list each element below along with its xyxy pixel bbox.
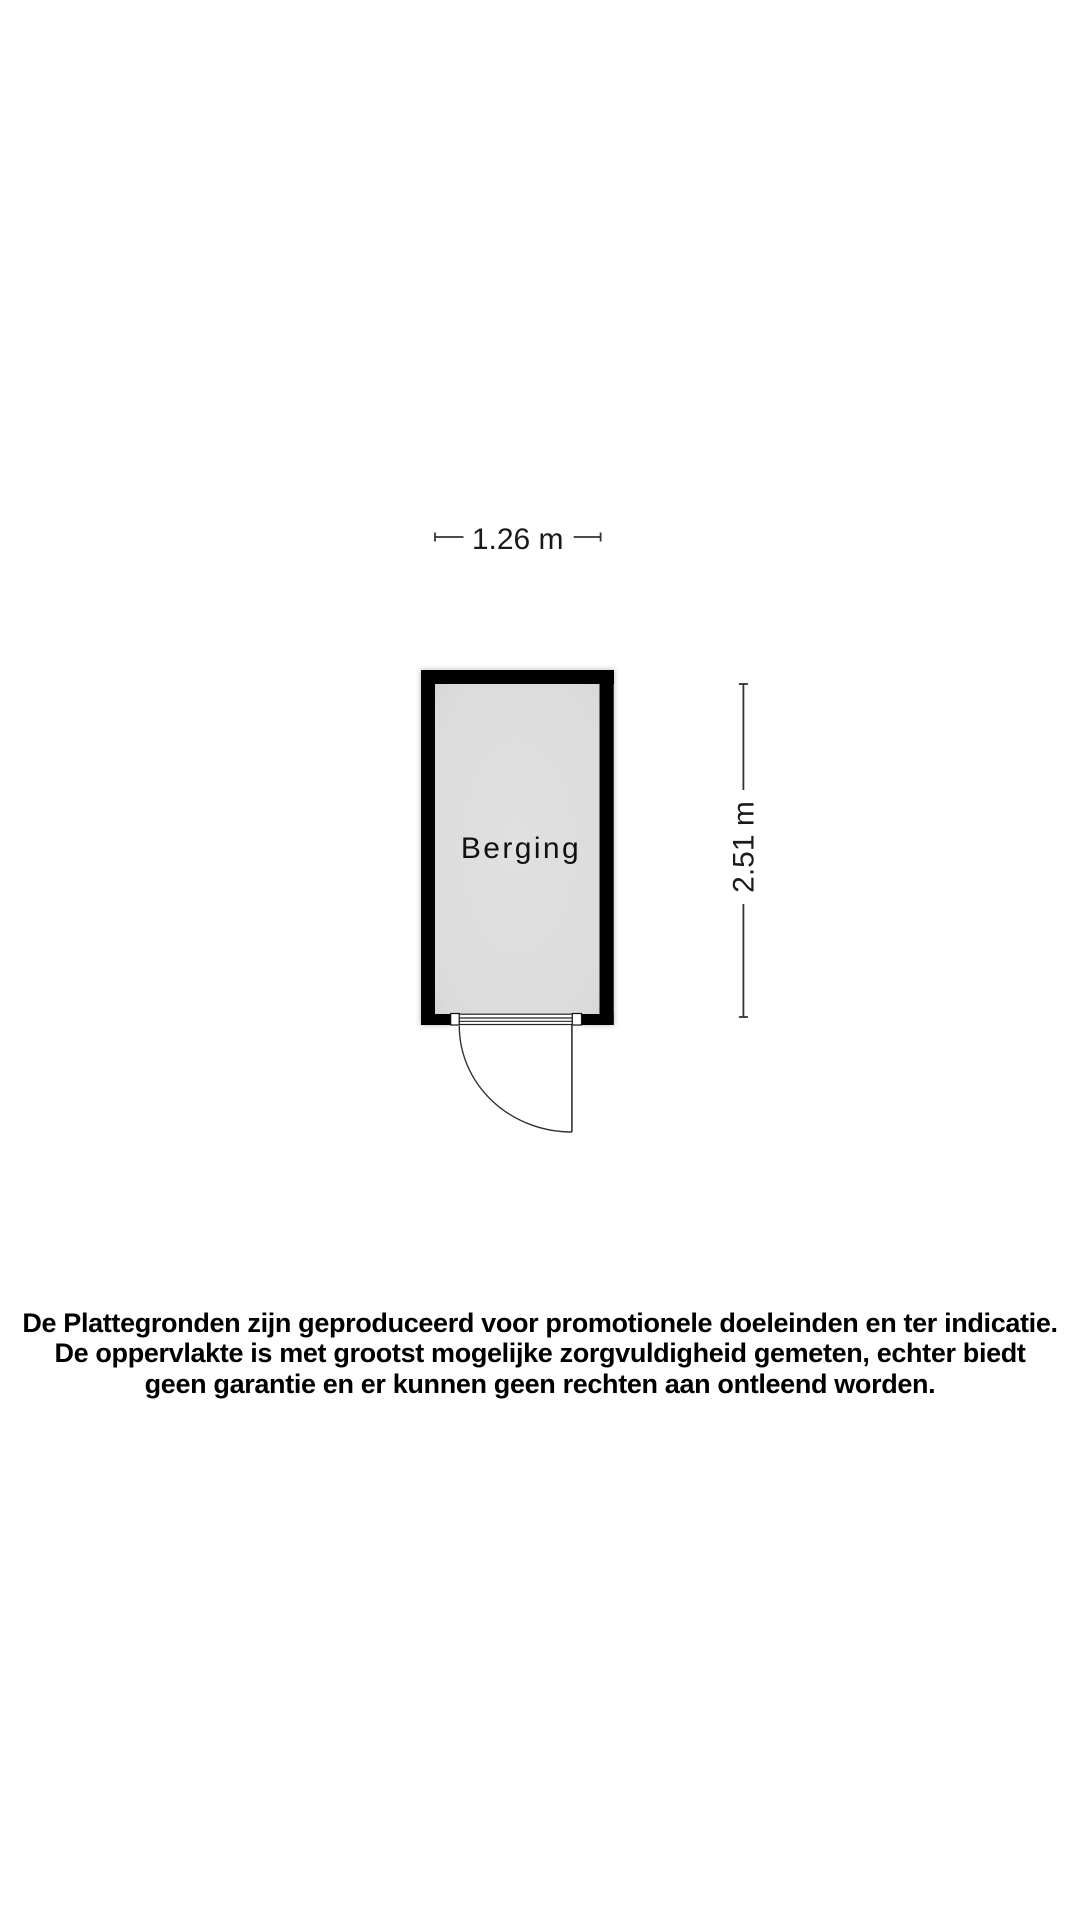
svg-text:2.51 m: 2.51 m	[728, 801, 761, 893]
svg-text:Berging: Berging	[461, 832, 581, 865]
svg-text:1.26 m: 1.26 m	[472, 523, 564, 556]
